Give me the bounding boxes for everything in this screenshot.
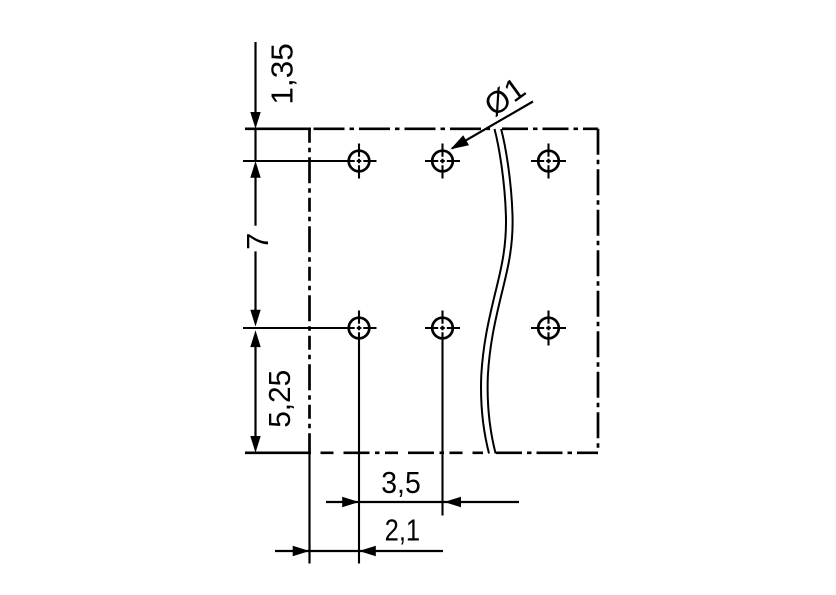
svg-text:1,35: 1,35 [264,43,299,105]
svg-text:7: 7 [240,233,275,250]
svg-text:5,25: 5,25 [262,370,297,428]
svg-text:3,5: 3,5 [381,465,421,500]
svg-text:2,1: 2,1 [385,513,421,548]
